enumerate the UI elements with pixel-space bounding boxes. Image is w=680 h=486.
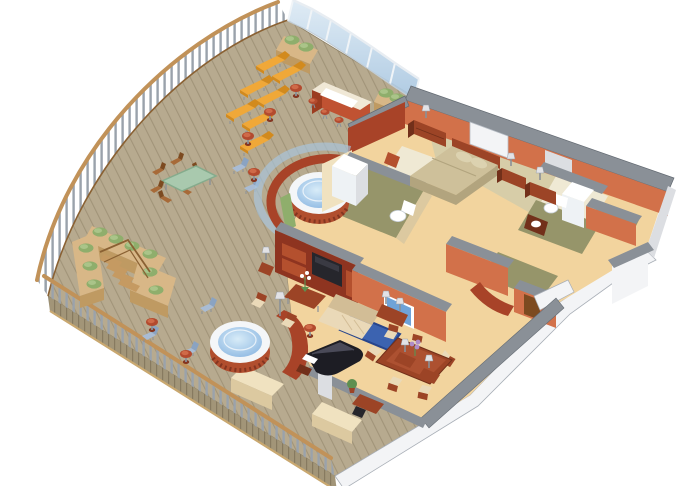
floor-plan-illustration bbox=[0, 0, 680, 486]
shower bbox=[332, 154, 368, 206]
suite-floor-plan-page bbox=[0, 0, 680, 486]
